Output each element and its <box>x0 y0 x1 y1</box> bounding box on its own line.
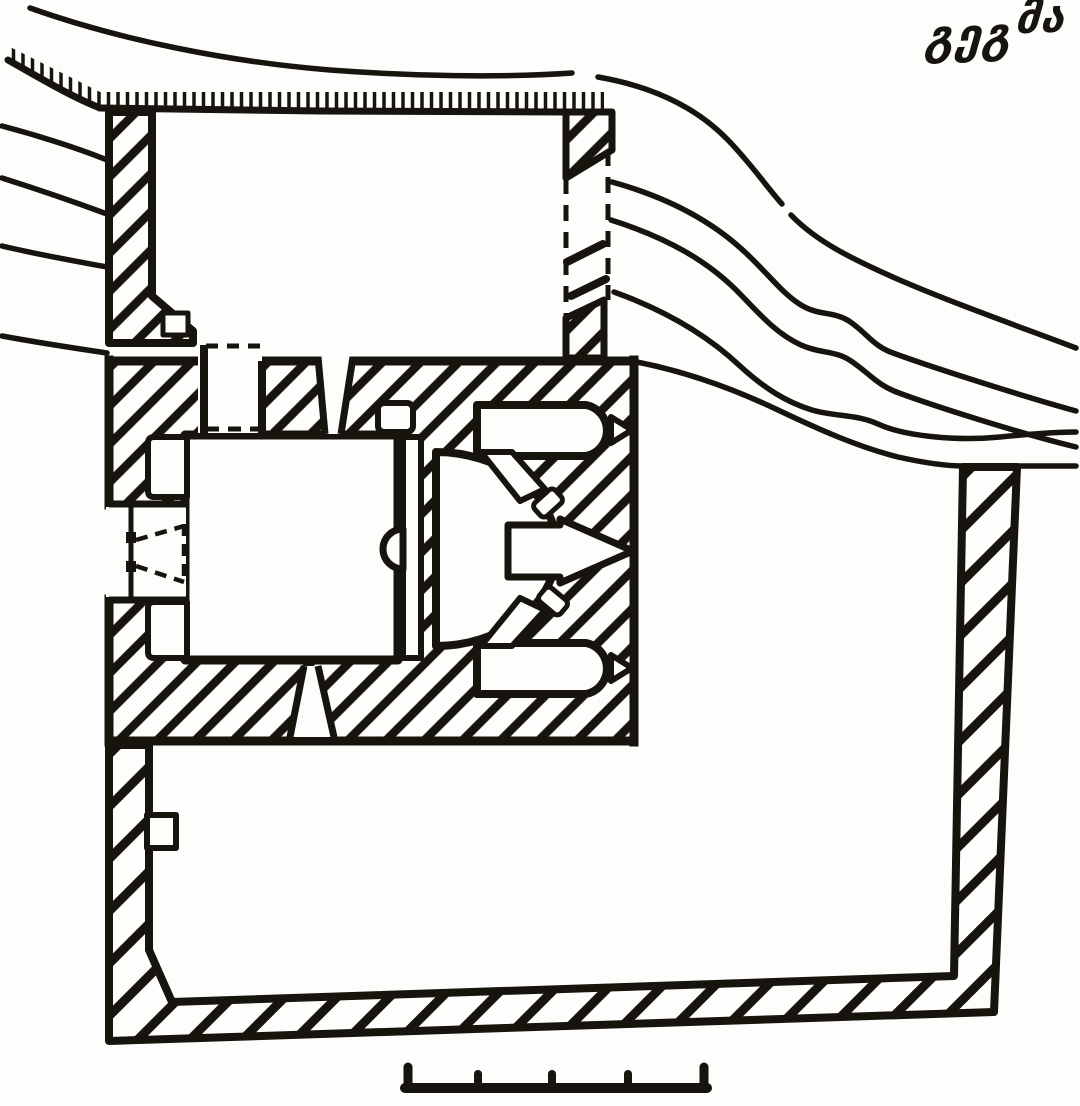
contour-right-2 <box>612 182 1076 411</box>
left-curtain-wall <box>109 112 193 343</box>
ruin-fragment-bottom <box>566 300 604 358</box>
bema-bump <box>383 529 403 569</box>
west-door-pivot-s <box>126 561 136 572</box>
wall-step-niche <box>163 313 188 335</box>
wall-pilaster <box>147 815 176 848</box>
plan-title: გეგმა <box>923 5 1066 65</box>
ruin-hatch-stroke-1 <box>567 244 603 262</box>
west-door-pivot-n <box>126 532 136 543</box>
plan-drawing <box>0 0 1080 1106</box>
north-wall-niche <box>378 403 413 432</box>
drawing-sheet: გეგმა <box>0 0 1080 1106</box>
church-block <box>106 344 634 742</box>
north-chamber <box>477 405 607 456</box>
contour-right-1b <box>791 215 1076 348</box>
cliff-edge-line-top <box>100 108 566 112</box>
plan-title-main: გეგ <box>923 7 1014 65</box>
contour-left-4 <box>2 336 107 353</box>
west-wall-niche-lower <box>148 602 187 658</box>
west-door <box>106 504 186 600</box>
contour-right-4 <box>614 292 1076 438</box>
ruin-hatch-stroke-2 <box>571 279 606 296</box>
nave <box>185 435 398 660</box>
north-door <box>198 344 262 433</box>
plan-title-raised: მა <box>1013 0 1067 44</box>
contour-left-1 <box>2 126 107 160</box>
contour-right-5 <box>637 362 1076 466</box>
cliff-edge-hatching <box>8 46 604 112</box>
contour-top <box>30 8 572 76</box>
contour-left-2 <box>2 178 107 214</box>
contour-left-3 <box>2 246 107 267</box>
upper-wall-body <box>109 112 193 343</box>
south-chamber <box>477 643 607 694</box>
west-door-opening <box>106 507 186 597</box>
ruined-east-wall-dashed <box>566 112 612 358</box>
west-wall-niche-upper <box>148 437 187 497</box>
ruin-fragment-top <box>566 112 612 178</box>
scale-bar <box>405 1067 707 1088</box>
cliff-edge-line-slope <box>8 60 100 108</box>
